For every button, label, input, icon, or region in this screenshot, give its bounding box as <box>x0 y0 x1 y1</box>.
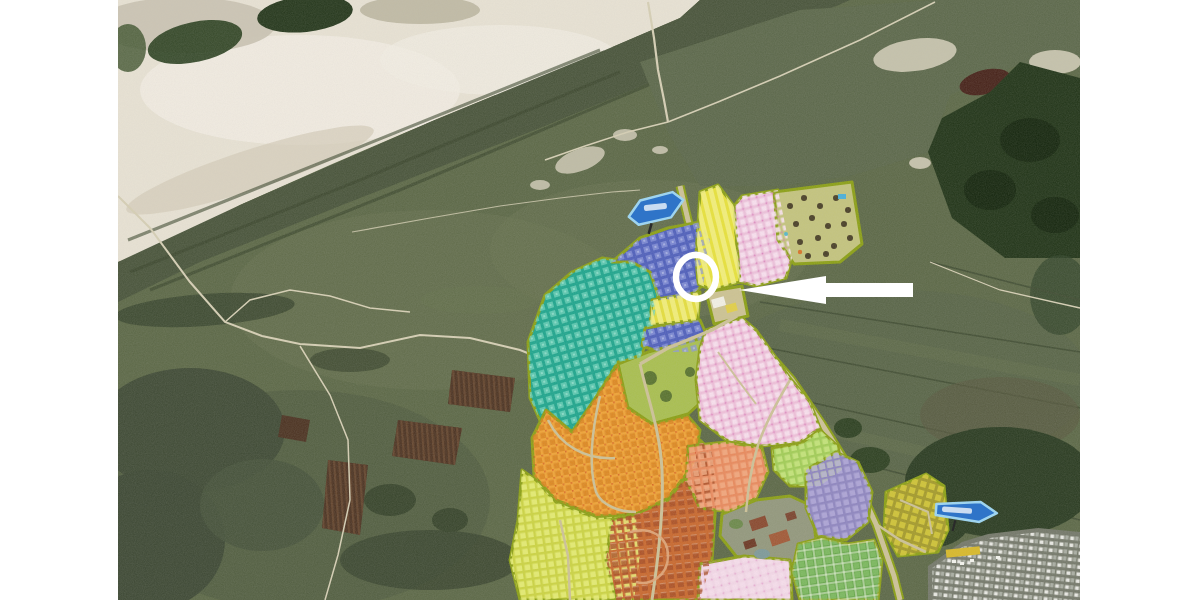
page-margin-right <box>1080 0 1200 600</box>
page-margin-left <box>0 0 118 600</box>
satellite-map-image <box>118 0 1080 600</box>
screenshot-stage <box>0 0 1200 600</box>
